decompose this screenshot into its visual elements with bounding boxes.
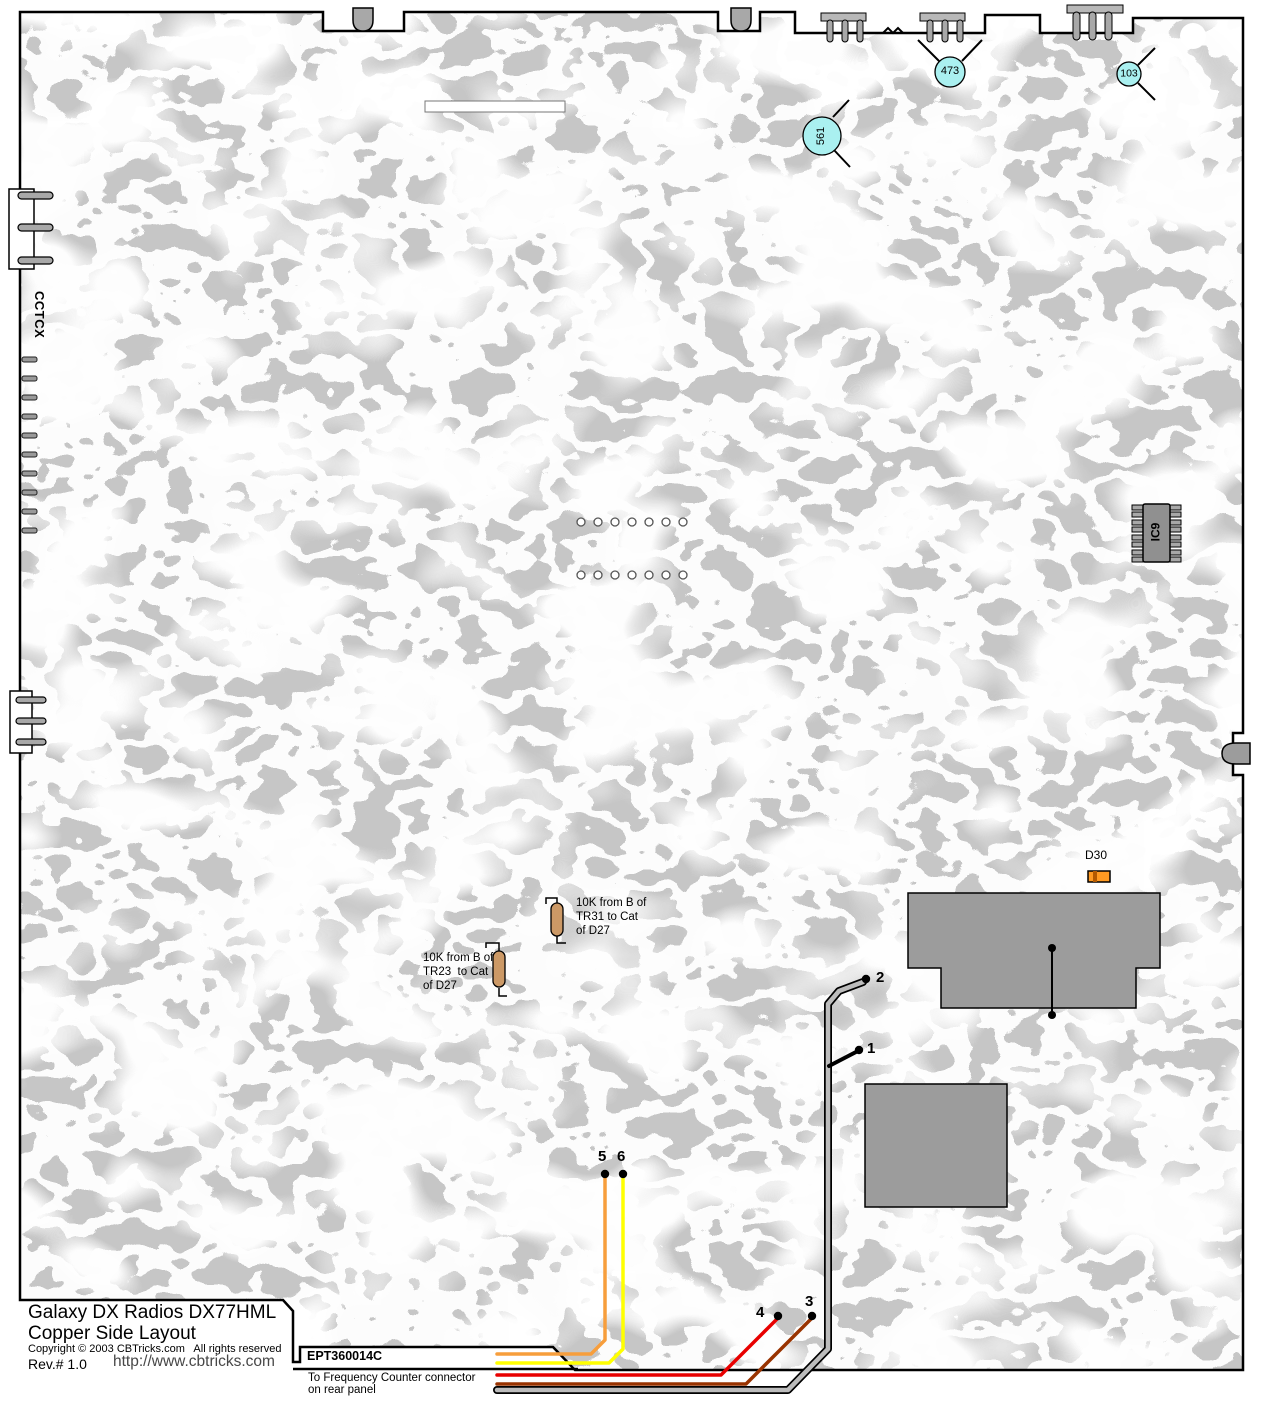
copper-traces-pattern [0, 0, 1280, 1408]
right-edge-tab [1222, 743, 1250, 764]
ic9-label: IC9 [1150, 523, 1163, 542]
title-line1: Galaxy DX Radios DX77HML [28, 1303, 276, 1323]
freq-counter-note-line1: To Frequency Counter connector [308, 1372, 475, 1384]
point-2-label: 2 [876, 970, 884, 986]
board-graphics [0, 0, 1280, 1408]
trimmer-473-label: 473 [941, 66, 959, 78]
tr23-note-line3: of D27 [423, 980, 457, 992]
d30-label: D30 [1085, 849, 1107, 862]
tr31-note-line1: 10K from B of [576, 897, 646, 909]
cctcx-edge-label: CCTCX [32, 291, 46, 338]
freq-counter-note-line2: on rear panel [308, 1384, 376, 1396]
heatsink-plate [865, 1084, 1007, 1207]
point-1-label: 1 [867, 1041, 875, 1057]
point-6-label: 6 [617, 1149, 625, 1165]
tr23-note-line2: TR23 to Cat [423, 966, 488, 978]
top-connector-2 [920, 13, 965, 42]
trimmer-561-label: 561 [816, 127, 828, 145]
top-connector-1 [821, 13, 866, 42]
tr31-note-line2: TR31 to Cat [576, 911, 638, 923]
revision-text: Rev.# 1.0 [28, 1357, 87, 1372]
left-connector-2 [10, 691, 46, 753]
tr23-note-line1: 10K from B of [423, 952, 493, 964]
point-4-label: 4 [756, 1305, 764, 1321]
title-line2: Copper Side Layout [28, 1324, 196, 1344]
trimmer-103-label: 103 [1120, 68, 1138, 79]
point-5-label: 5 [598, 1149, 606, 1165]
heatsink-bracket [908, 893, 1160, 1008]
tr31-note-line3: of D27 [576, 925, 610, 937]
d30-diode [1088, 871, 1110, 882]
pcb-copper-side-layout: Galaxy DX Radios DX77HML Copper Side Lay… [0, 0, 1280, 1408]
website-url[interactable]: http://www.cbtricks.com [113, 1354, 275, 1370]
point-3-label: 3 [805, 1294, 813, 1310]
board-slot [425, 101, 565, 112]
mount-hole [1180, 23, 1206, 49]
part-number: EPT360014C [307, 1350, 382, 1363]
